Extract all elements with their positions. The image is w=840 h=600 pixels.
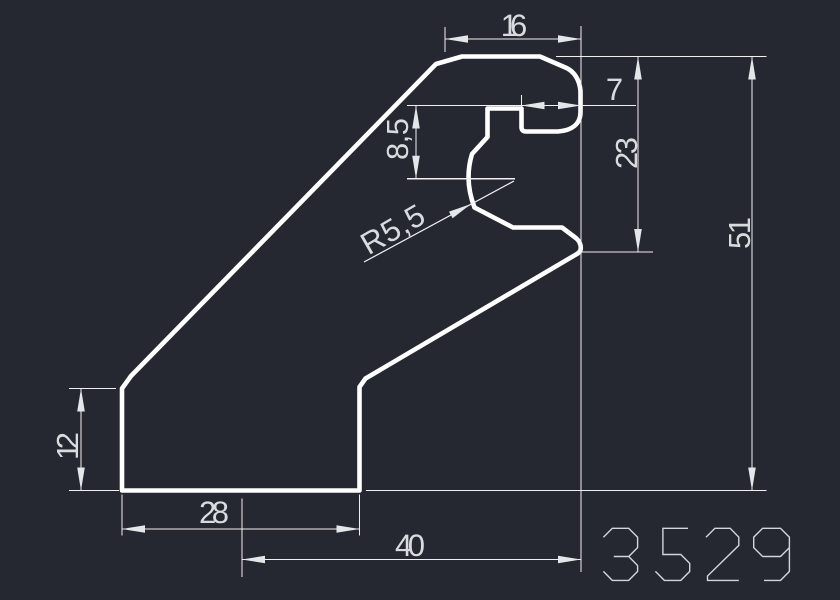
svg-text:28: 28 [199, 495, 229, 530]
svg-text:40: 40 [395, 528, 425, 563]
svg-text:7: 7 [606, 72, 623, 107]
svg-text:12: 12 [50, 432, 85, 460]
svg-text:16: 16 [501, 8, 528, 43]
svg-text:23: 23 [609, 137, 644, 169]
svg-text:51: 51 [722, 217, 757, 249]
svg-text:8,5: 8,5 [380, 118, 415, 160]
